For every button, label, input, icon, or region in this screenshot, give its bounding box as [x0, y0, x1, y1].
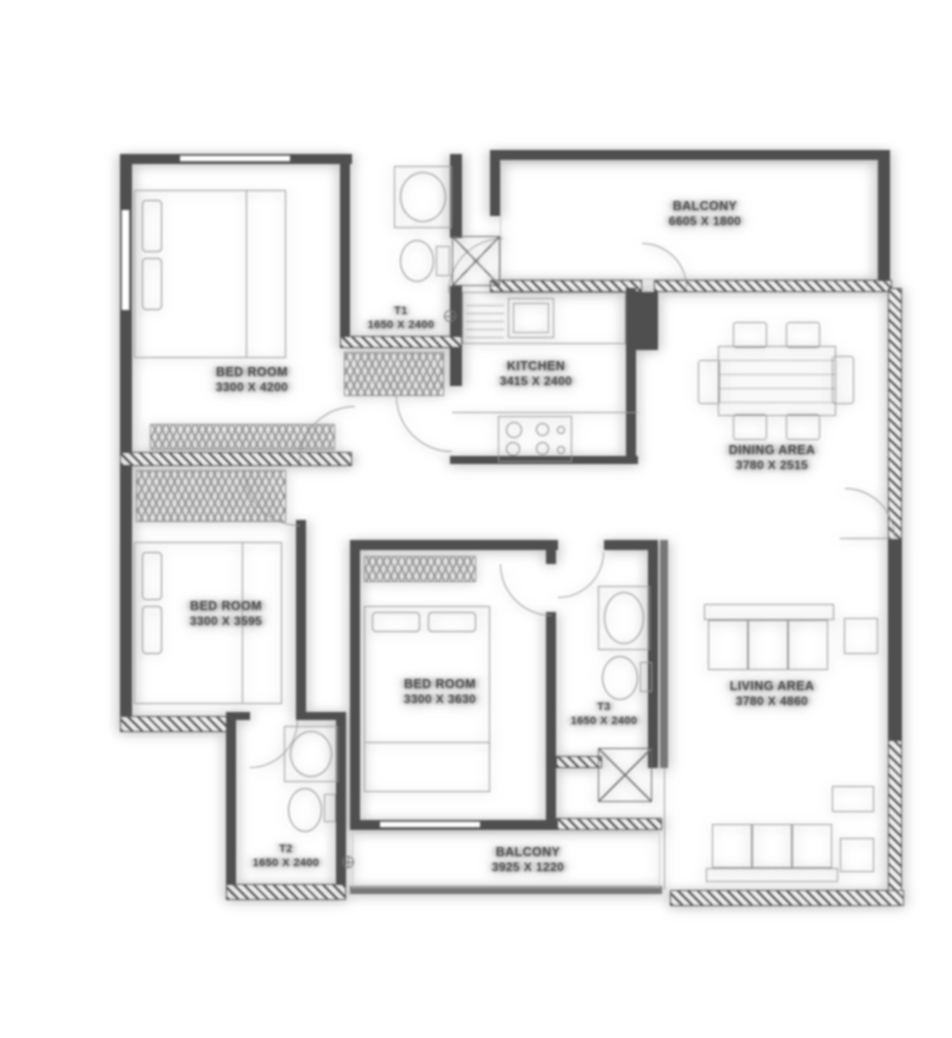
toilet-bowl [602, 656, 638, 700]
room-label-bedroom-mid-left: BED ROOM 3300 X 3595 [146, 598, 306, 630]
side-table [844, 618, 878, 654]
wardrobe-hatch [136, 470, 286, 522]
wall-line [664, 768, 665, 890]
wardrobe-hatch [364, 556, 476, 582]
hatched-wall [888, 288, 902, 540]
room-dims: 3780 X 4860 [692, 694, 852, 710]
sofa-seat [712, 824, 752, 868]
sofa-back [704, 604, 834, 620]
room-label-kitchen: KITCHEN 3415 X 2400 [466, 358, 606, 390]
window [380, 821, 480, 828]
hatched-wall [120, 716, 232, 732]
console-table [832, 786, 874, 812]
counter-line [452, 412, 638, 413]
sofa-back [706, 868, 838, 882]
sofa-seat [752, 824, 792, 868]
toilet-bowl [288, 788, 322, 832]
wall-line [840, 538, 890, 539]
wardrobe-hatch [344, 352, 444, 396]
room-label-toilet-t2: T2 1650 X 2400 [234, 842, 338, 871]
stove-burner [506, 422, 522, 438]
wall-segment [660, 540, 668, 768]
pillow [372, 612, 420, 632]
bed-fold-line [364, 742, 490, 743]
room-label-bedroom-center: BED ROOM 3300 X 3630 [360, 676, 520, 708]
sofa-seat [708, 620, 748, 670]
wall-segment [350, 540, 558, 550]
room-name: LIVING AREA [692, 678, 852, 694]
room-dims: 3300 X 3595 [146, 614, 306, 630]
wall-segment [350, 540, 360, 830]
pillow [142, 200, 162, 252]
room-dims: 3300 X 4200 [162, 380, 342, 396]
hatched-wall [888, 740, 902, 906]
room-dims: 3415 X 2400 [466, 374, 606, 390]
room-dims: 1650 X 2400 [552, 714, 656, 728]
wall-segment [546, 540, 556, 564]
pillow [142, 258, 162, 310]
room-label-dining: DINING AREA 3780 X 2515 [692, 442, 852, 474]
drainboard-lines [466, 298, 504, 338]
stove-burner [506, 442, 520, 456]
room-dims: 3300 X 3630 [360, 692, 520, 708]
wall-segment [490, 160, 500, 216]
room-label-toilet-t1: T1 1650 X 2400 [348, 304, 454, 333]
wall-segment [120, 466, 132, 730]
dining-table [718, 346, 836, 416]
hatched-wall [340, 336, 462, 348]
wash-basin [400, 172, 446, 222]
wall-segment [226, 712, 236, 900]
room-label-bedroom-top-left: BED ROOM 3300 X 4200 [162, 364, 342, 396]
dining-chair [786, 322, 820, 348]
wardrobe-hatch [150, 424, 335, 450]
room-name: BED ROOM [162, 364, 342, 380]
room-name: T2 [234, 842, 338, 856]
hatched-wall [654, 280, 892, 292]
floor-plan: BED ROOM 3300 X 4200 T1 1650 X 2400 BALC… [0, 0, 952, 1038]
stove-knob [557, 426, 565, 434]
hatched-wall [490, 280, 642, 292]
sofa-seat [792, 824, 832, 868]
dining-chair [786, 414, 820, 440]
shaft-duct [452, 236, 500, 286]
wall-segment [120, 154, 132, 466]
room-name: BED ROOM [360, 676, 520, 692]
room-name: BED ROOM [146, 598, 306, 614]
toilet-bowl [400, 240, 434, 282]
floor-plan-canvas: BED ROOM 3300 X 4200 T1 1650 X 2400 BALC… [0, 0, 952, 1038]
hatched-wall [556, 818, 662, 830]
room-label-balcony-top: BALCONY 6605 X 1800 [625, 198, 785, 230]
room-dims: 6605 X 1800 [625, 214, 785, 230]
wall-segment [888, 540, 902, 740]
stove-burner [536, 423, 549, 436]
room-name: T1 [348, 304, 454, 318]
blur-wrapper: BED ROOM 3300 X 4200 T1 1650 X 2400 BALC… [0, 0, 952, 1038]
side-table [840, 838, 874, 872]
datum-marker-icon [342, 856, 354, 868]
window [121, 210, 130, 310]
room-name: BALCONY [625, 198, 785, 214]
wall-segment [878, 150, 890, 288]
window [180, 155, 290, 162]
room-label-living: LIVING AREA 3780 X 4860 [692, 678, 852, 710]
toilet-tank [640, 662, 652, 692]
kitchen-sink-basin [513, 303, 549, 333]
dining-chair [733, 414, 767, 440]
room-dims: 1650 X 2400 [234, 856, 338, 870]
toilet-tank [324, 794, 336, 822]
stove-knob [557, 446, 565, 454]
dining-chair [698, 360, 720, 404]
hatched-wall [670, 890, 904, 906]
wall-segment [626, 288, 636, 464]
wash-basin [604, 592, 644, 644]
room-dims: 3780 X 2515 [692, 458, 852, 474]
sofa-seat [748, 620, 788, 670]
dining-chair [832, 356, 854, 404]
toilet-tank [436, 246, 450, 276]
dining-chair [733, 322, 767, 348]
shaft-duct [598, 748, 652, 802]
wash-basin [290, 731, 332, 777]
room-dims: 3925 X 1220 [448, 860, 608, 876]
hatched-wall [556, 756, 602, 768]
wall-segment [648, 540, 658, 768]
pillow [142, 552, 162, 600]
bed-fold-line [246, 190, 247, 358]
room-name: T3 [552, 700, 656, 714]
pillow [428, 612, 476, 632]
room-label-balcony-bottom: BALCONY 3925 X 1220 [448, 844, 608, 876]
room-label-toilet-t3: T3 1650 X 2400 [552, 700, 656, 729]
room-name: DINING AREA [692, 442, 852, 458]
stove-burner [536, 442, 549, 455]
room-name: KITCHEN [466, 358, 606, 374]
hatched-wall [226, 884, 346, 900]
wall-segment [490, 150, 890, 160]
room-dims: 1650 X 2400 [348, 318, 454, 332]
sofa-seat [788, 620, 828, 670]
room-name: BALCONY [448, 844, 608, 860]
